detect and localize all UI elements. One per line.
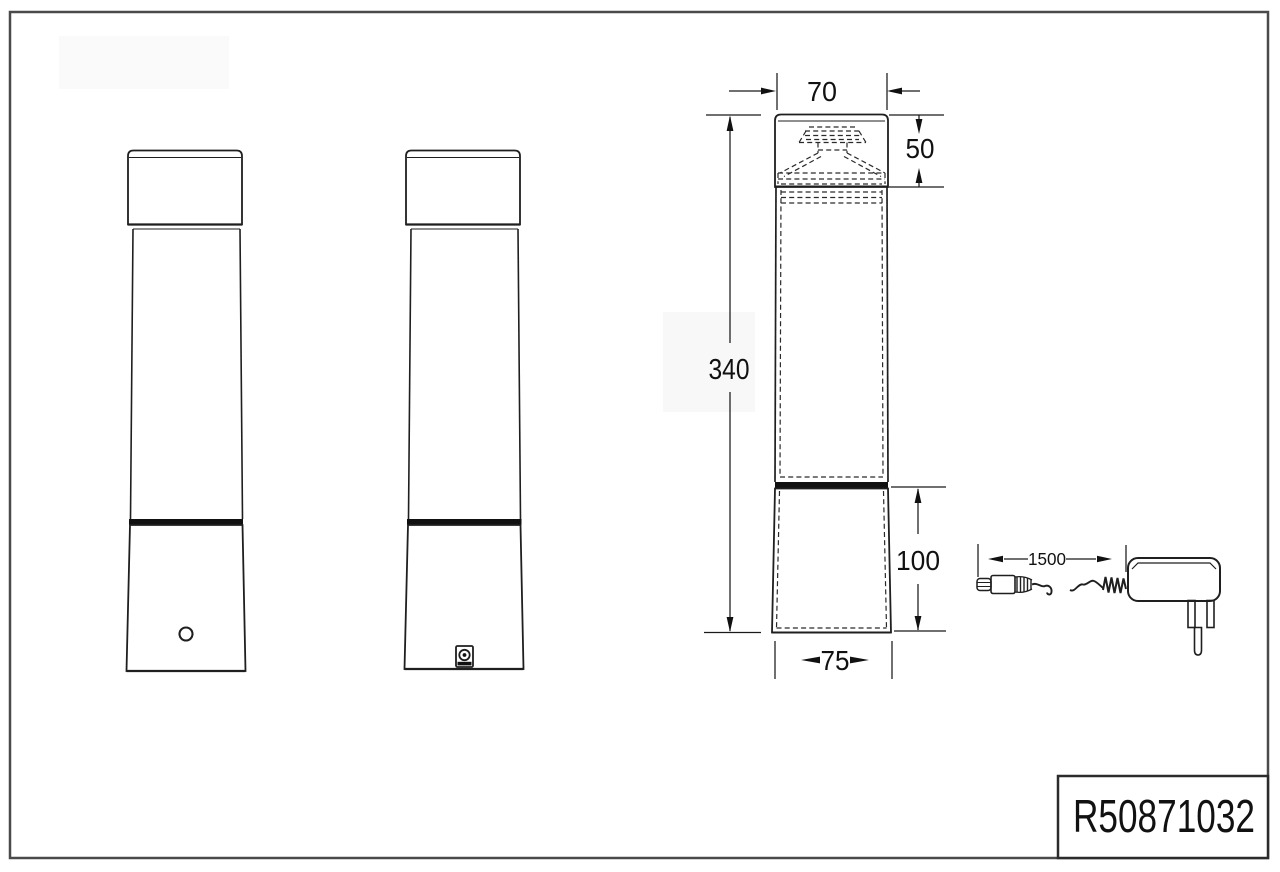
dim-head-height: 50 <box>889 115 944 187</box>
watermark-patch-top-left <box>59 36 229 89</box>
dim-head-width: 70 <box>729 73 920 110</box>
plug-bridge-left <box>1188 601 1195 628</box>
dim-label-base-width: 75 <box>821 645 850 676</box>
power-adapter-drawing: 1500 <box>977 544 1220 655</box>
front-body <box>131 229 243 519</box>
title-block: R50871032 <box>1058 776 1268 858</box>
technical-drawing: 70 50 340 100 75 <box>0 0 1280 872</box>
lamp-front-view <box>127 151 246 672</box>
lamp-back-view <box>405 151 524 670</box>
dim-label-total-height: 340 <box>709 354 750 386</box>
plug-bridge-right <box>1207 601 1214 628</box>
section-body <box>775 187 888 482</box>
section-trim-band <box>775 482 888 489</box>
back-base <box>405 525 524 669</box>
lamp-section-view <box>772 115 891 633</box>
section-cap <box>775 115 888 188</box>
drawing-frame <box>10 12 1268 858</box>
section-base <box>772 489 891 633</box>
dim-cable-length: 1500 <box>978 544 1126 577</box>
section-hidden-insert <box>778 127 885 184</box>
strain-relief-coil <box>1103 577 1126 593</box>
dim-label-cable-length: 1500 <box>1028 549 1066 569</box>
back-cap <box>406 151 520 225</box>
back-power-socket <box>456 646 473 667</box>
front-touch-button <box>180 628 193 641</box>
product-code: R50871032 <box>1073 790 1255 842</box>
front-cap <box>128 151 242 225</box>
back-body <box>409 229 521 519</box>
dim-label-head-width: 70 <box>807 76 837 107</box>
dc-plug <box>977 576 1052 595</box>
front-base <box>127 525 246 671</box>
plug-pin <box>1195 628 1202 656</box>
dim-label-head-height: 50 <box>906 133 935 164</box>
drawing-sheet: 70 50 340 100 75 <box>0 0 1280 872</box>
dim-base-height: 100 <box>891 487 946 631</box>
cable-segment-right <box>1070 581 1103 591</box>
cable-segment-left <box>1032 584 1052 595</box>
dim-base-width: 75 <box>775 641 892 679</box>
wall-plug-body <box>1128 558 1220 655</box>
dim-label-base-height: 100 <box>896 545 940 576</box>
